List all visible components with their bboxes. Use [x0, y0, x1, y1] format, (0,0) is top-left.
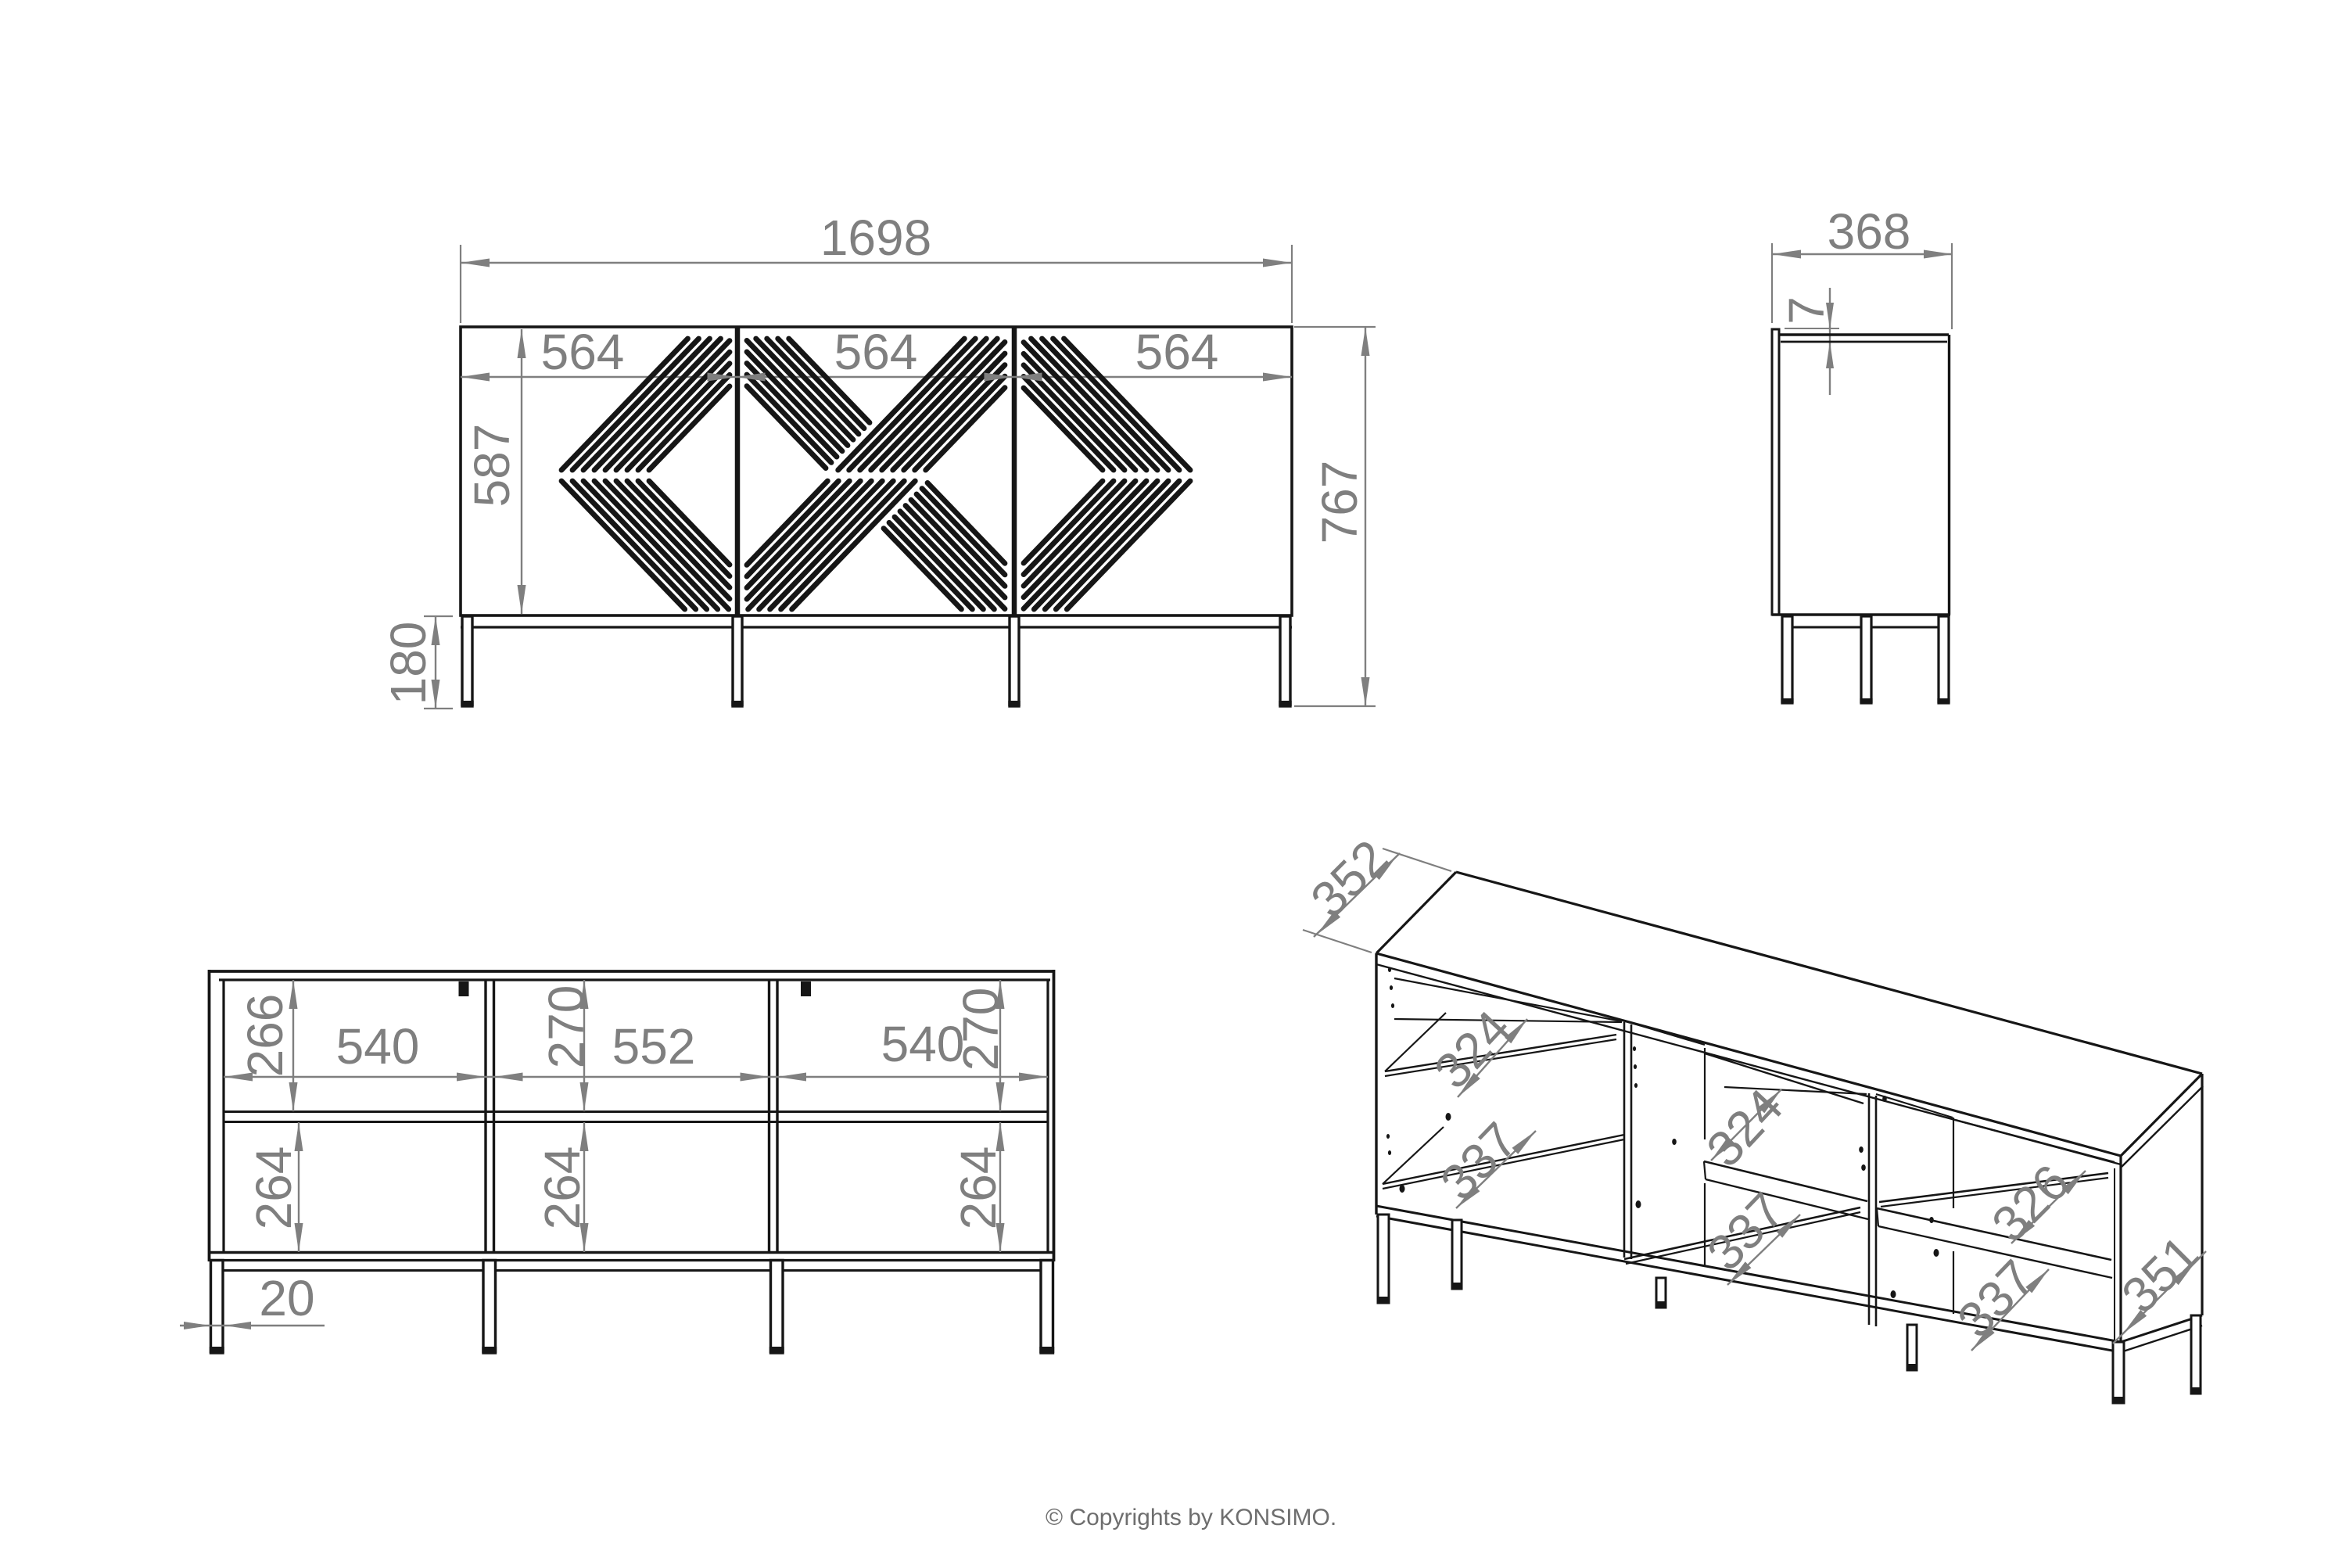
svg-text:270: 270 — [952, 988, 1009, 1071]
svg-text:552: 552 — [612, 1018, 696, 1075]
svg-text:20: 20 — [259, 1270, 314, 1326]
svg-text:270: 270 — [538, 985, 594, 1069]
svg-text:767: 767 — [1311, 461, 1368, 544]
svg-text:564: 564 — [541, 324, 625, 380]
svg-text:© Copyrights by KONSIMO.: © Copyrights by KONSIMO. — [1046, 1505, 1336, 1530]
svg-text:587: 587 — [464, 424, 520, 508]
svg-text:368: 368 — [1828, 203, 1911, 260]
svg-text:7: 7 — [1778, 296, 1835, 325]
svg-text:180: 180 — [380, 622, 436, 705]
svg-text:266: 266 — [237, 994, 293, 1078]
svg-text:264: 264 — [534, 1146, 590, 1230]
svg-text:564: 564 — [1135, 324, 1219, 380]
svg-text:540: 540 — [336, 1018, 420, 1075]
svg-text:264: 264 — [246, 1146, 302, 1230]
svg-text:264: 264 — [950, 1146, 1006, 1230]
svg-text:564: 564 — [834, 324, 918, 380]
svg-text:1698: 1698 — [820, 210, 931, 266]
